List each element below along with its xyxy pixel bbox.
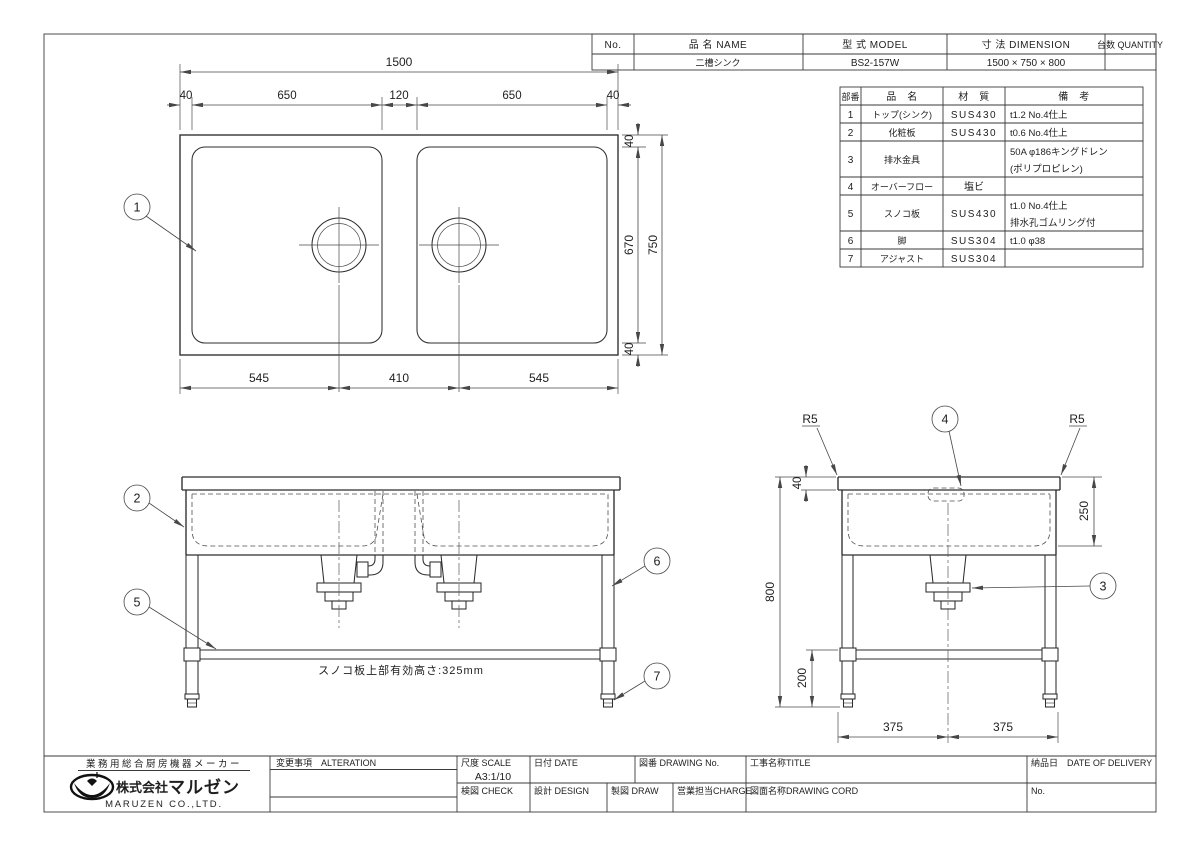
dim-410: 410 xyxy=(389,371,409,385)
front-view: スノコ板上部有効高さ:325mm 2 5 6 7 xyxy=(124,477,670,707)
front-drains xyxy=(317,500,481,628)
part-no: 2 xyxy=(848,128,854,139)
part-material: SUS430 xyxy=(951,128,997,139)
parts-row-5: 5 スノコ板 SUS430 t1.0 No.4仕上 排水孔ゴムリング付 xyxy=(848,200,1096,229)
dim-40-rail: 40 xyxy=(792,477,804,490)
draw-label: 製図 DRAW xyxy=(611,785,659,796)
charge-label: 営業担当CHARGE xyxy=(677,785,752,796)
parts-row-1: 1 トップ(シンク) SUS430 t1.2 No.4仕上 xyxy=(848,109,1068,121)
plan-view: 1500 40 650 120 650 40 545 410 545 40 67… xyxy=(124,55,668,394)
balloon-1: 1 xyxy=(124,194,196,251)
part-no: 5 xyxy=(848,209,854,220)
parts-col-material: 材 質 xyxy=(958,90,990,103)
header-col-dimension: 寸 法 DIMENSION xyxy=(982,38,1071,51)
balloon-4-label: 4 xyxy=(942,413,949,427)
side-legs xyxy=(842,555,1056,694)
alteration-label: 変更事項 ALTERATION xyxy=(276,757,376,768)
part-material: SUS304 xyxy=(951,254,997,265)
balloon-7-label: 7 xyxy=(654,670,661,684)
balloon-7: 7 xyxy=(614,663,670,700)
dim-375-left: 375 xyxy=(883,720,903,734)
date-label: 日付 DATE xyxy=(534,758,578,768)
part-material: 塩ビ xyxy=(964,180,984,193)
side-body xyxy=(842,490,1056,555)
front-overflow-pipes-hidden xyxy=(375,491,423,555)
dim-40-bottom: 40 xyxy=(624,343,636,356)
side-top-rail xyxy=(838,477,1060,490)
scale-value: A3:1/10 xyxy=(475,771,511,783)
dim-40-top: 40 xyxy=(624,135,636,148)
delivery-label: 納品日 DATE OF DELIVERY xyxy=(1031,757,1152,768)
drawing-sheet: No. 品 名 NAME 型 式 MODEL 寸 法 DIMENSION 台数 … xyxy=(0,0,1200,848)
part-name: アジャスト xyxy=(880,254,924,264)
side-adjusters xyxy=(841,694,1057,707)
header-col-quantity: 台数 QUANTITY xyxy=(1097,39,1163,50)
part-remarks: t1.0 No.4仕上 xyxy=(1010,200,1068,212)
part-no: 7 xyxy=(848,254,854,265)
part-no: 4 xyxy=(848,182,854,193)
side-view: R5 R5 40 800 250 200 375 375 4 xyxy=(763,406,1116,743)
dim-670: 670 xyxy=(622,235,636,255)
header-col-no: No. xyxy=(604,40,621,51)
drain-centerlines xyxy=(299,207,499,283)
plan-dimensions: 1500 40 650 120 650 40 545 410 545 40 67… xyxy=(167,55,662,388)
part-remarks: 50A φ186キングドレン xyxy=(1010,146,1108,158)
side-basin-hidden xyxy=(848,494,1050,546)
scale-label: 尺度 SCALE xyxy=(461,757,511,768)
product-name: 二槽シンク xyxy=(695,57,740,68)
parts-table: 部番 品 名 材 質 備 考 1 トップ(シンク) SUS430 t1.2 No… xyxy=(840,87,1143,267)
company-prefix: 株式会社 xyxy=(116,780,168,795)
title-block: 業務用総合厨房機器メーカー 株式会社 マルゼン MARUZEN CO.,LTD.… xyxy=(44,756,1156,812)
front-top-rail xyxy=(182,477,620,490)
dim-40-left: 40 xyxy=(180,90,193,102)
side-shelf xyxy=(855,650,1043,659)
dim-250: 250 xyxy=(1077,501,1091,521)
dim-375-right: 375 xyxy=(993,720,1013,734)
dim-650-left: 650 xyxy=(277,90,296,102)
parts-row-3: 3 排水金具 50A φ186キングドレン (ポリプロピレン) xyxy=(848,146,1108,175)
company-name-en: MARUZEN CO.,LTD. xyxy=(105,799,223,810)
part-name: トップ(シンク) xyxy=(872,110,932,120)
part-remarks: (ポリプロピレン) xyxy=(1010,164,1083,175)
dim-1500: 1500 xyxy=(386,55,413,69)
check-label: 検図 CHECK xyxy=(461,785,513,796)
balloon-1-label: 1 xyxy=(134,201,141,215)
part-name: オーバーフロー xyxy=(871,182,933,192)
maruzen-logo-icon xyxy=(71,772,113,799)
parts-col-name: 品 名 xyxy=(886,90,918,103)
dim-120: 120 xyxy=(389,90,408,102)
company-name-logotype: マルゼン xyxy=(168,777,240,797)
company-cell: 業務用総合厨房機器メーカー 株式会社 マルゼン MARUZEN CO.,LTD. xyxy=(71,758,250,810)
front-left-basin-hidden xyxy=(192,494,383,546)
part-remarks: t0.6 No.4仕上 xyxy=(1010,127,1068,139)
part-remarks: t1.0 φ38 xyxy=(1010,236,1045,247)
parts-row-4: 4 オーバーフロー 塩ビ xyxy=(848,180,984,193)
part-name: 化粧板 xyxy=(888,127,915,138)
fillet-r5-left: R5 xyxy=(802,412,818,426)
parts-col-no: 部番 xyxy=(841,91,859,102)
model-number: BS2-157W xyxy=(851,58,900,69)
part-no: 3 xyxy=(848,155,854,166)
no-label: No. xyxy=(1031,786,1045,796)
front-body xyxy=(186,490,614,555)
front-shelf xyxy=(200,650,600,659)
front-adjusters xyxy=(185,694,615,707)
header-table: No. 品 名 NAME 型 式 MODEL 寸 法 DIMENSION 台数 … xyxy=(592,34,1163,70)
header-col-name: 品 名 NAME xyxy=(689,38,747,51)
dim-750: 750 xyxy=(646,235,660,255)
balloon-6-label: 6 xyxy=(654,555,661,569)
balloon-3: 3 xyxy=(972,573,1116,599)
parts-col-remarks: 備 考 xyxy=(1058,90,1090,103)
balloon-3-label: 3 xyxy=(1100,580,1107,594)
balloon-5: 5 xyxy=(124,589,216,649)
cad-drawing: No. 品 名 NAME 型 式 MODEL 寸 法 DIMENSION 台数 … xyxy=(0,0,1200,848)
drawing-no-label: 図番 DRAWING No. xyxy=(639,757,719,768)
part-remarks: t1.2 No.4仕上 xyxy=(1010,109,1068,121)
part-material: SUS430 xyxy=(951,209,997,220)
sheet-border xyxy=(44,34,1156,812)
part-material: SUS304 xyxy=(951,236,997,247)
plan-top-outline xyxy=(180,135,618,355)
parts-row-7: 7 アジャスト SUS304 xyxy=(848,254,997,265)
part-no: 6 xyxy=(848,236,854,247)
fillet-r5-right: R5 xyxy=(1069,412,1085,426)
part-name: 脚 xyxy=(897,236,906,246)
balloon-2: 2 xyxy=(124,485,184,527)
dim-545-left: 545 xyxy=(249,371,269,385)
shelf-height-note: スノコ板上部有効高さ:325mm xyxy=(318,663,484,677)
maker-tagline: 業務用総合厨房機器メーカー xyxy=(86,758,242,770)
part-remarks: 排水孔ゴムリング付 xyxy=(1010,217,1096,229)
part-no: 1 xyxy=(848,110,854,121)
balloon-6: 6 xyxy=(612,548,670,586)
part-material: SUS430 xyxy=(951,110,997,121)
design-label: 設計 DESIGN xyxy=(534,785,589,796)
dim-40-right: 40 xyxy=(607,90,620,102)
part-name: スノコ板 xyxy=(884,208,920,219)
part-name: 排水金具 xyxy=(884,154,920,165)
parts-row-6: 6 脚 SUS304 t1.0 φ38 xyxy=(848,236,1046,247)
front-right-basin-hidden xyxy=(417,494,608,546)
title-label: 工事名称TITLE xyxy=(750,757,811,768)
drawing-cord-label: 図面名称DRAWING CORD xyxy=(750,785,859,796)
balloon-5-label: 5 xyxy=(134,596,141,610)
dim-545-right: 545 xyxy=(529,371,549,385)
header-col-model: 型 式 MODEL xyxy=(842,38,908,51)
overall-dimension: 1500 × 750 × 800 xyxy=(987,58,1066,69)
dim-200: 200 xyxy=(795,668,809,688)
balloon-2-label: 2 xyxy=(134,492,141,506)
dim-650-right: 650 xyxy=(502,90,521,102)
balloon-4: 4 xyxy=(932,406,961,486)
parts-row-2: 2 化粧板 SUS430 t0.6 No.4仕上 xyxy=(848,127,1068,139)
dim-800: 800 xyxy=(763,582,777,602)
